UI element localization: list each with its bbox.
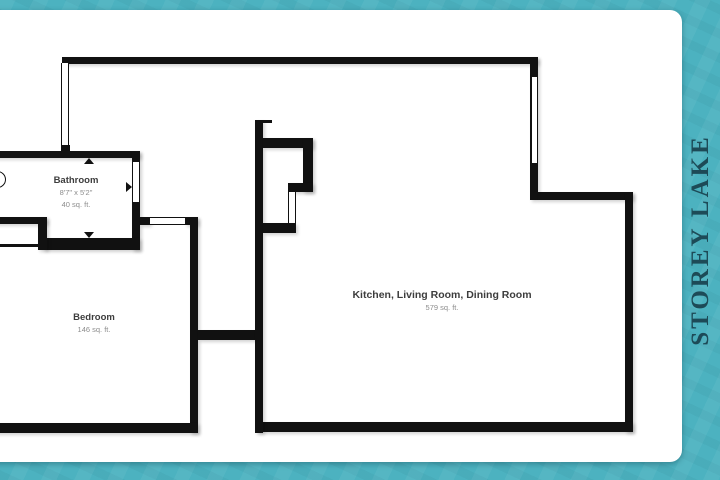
closet-opening — [288, 192, 296, 223]
kitchen-right-wall — [625, 192, 633, 432]
bathroom-top-marker-icon — [84, 158, 94, 164]
top-exterior-wall — [62, 57, 538, 64]
bedroom-left-window-sill — [0, 244, 40, 247]
bathroom-bottom-marker-icon — [84, 232, 94, 238]
bathroom-door-arc-icon — [0, 171, 6, 188]
right-window — [531, 77, 538, 163]
right-step-wall — [538, 192, 633, 200]
kitchen-left-wall-cap — [255, 120, 272, 123]
kitchen-bottom-wall — [257, 422, 633, 432]
bathroom-top-wall — [0, 151, 140, 158]
closet-step-wall — [288, 183, 313, 192]
bathroom-bottom-wall — [43, 238, 140, 250]
bathroom-area: 40 sq. ft. — [16, 199, 136, 211]
bathroom-name: Bathroom — [16, 174, 136, 187]
floorplan: Bathroom 8'7" x 5'2" 40 sq. ft. Bedroom … — [0, 0, 720, 480]
closet-bottom-wall — [263, 223, 296, 233]
bathroom-label: Bathroom 8'7" x 5'2" 40 sq. ft. — [16, 174, 136, 211]
hallway-wall — [198, 330, 257, 340]
bedroom-bottom-wall — [0, 423, 198, 433]
bedroom-name: Bedroom — [34, 311, 154, 324]
kitchen-living-dining-name: Kitchen, Living Room, Dining Room — [330, 289, 554, 302]
kitchen-left-wall — [255, 120, 263, 433]
bedroom-area: 146 sq. ft. — [34, 324, 154, 336]
kitchen-living-dining-area: 579 sq. ft. — [330, 302, 554, 314]
bathroom-dimensions: 8'7" x 5'2" — [16, 187, 136, 199]
kitchen-living-dining-label: Kitchen, Living Room, Dining Room 579 sq… — [330, 289, 554, 314]
bedroom-top-wall-left — [140, 217, 150, 225]
left-window — [61, 63, 69, 146]
bedroom-label: Bedroom 146 sq. ft. — [34, 311, 154, 336]
bedroom-right-wall — [190, 217, 198, 433]
bedroom-top-window — [150, 217, 185, 225]
